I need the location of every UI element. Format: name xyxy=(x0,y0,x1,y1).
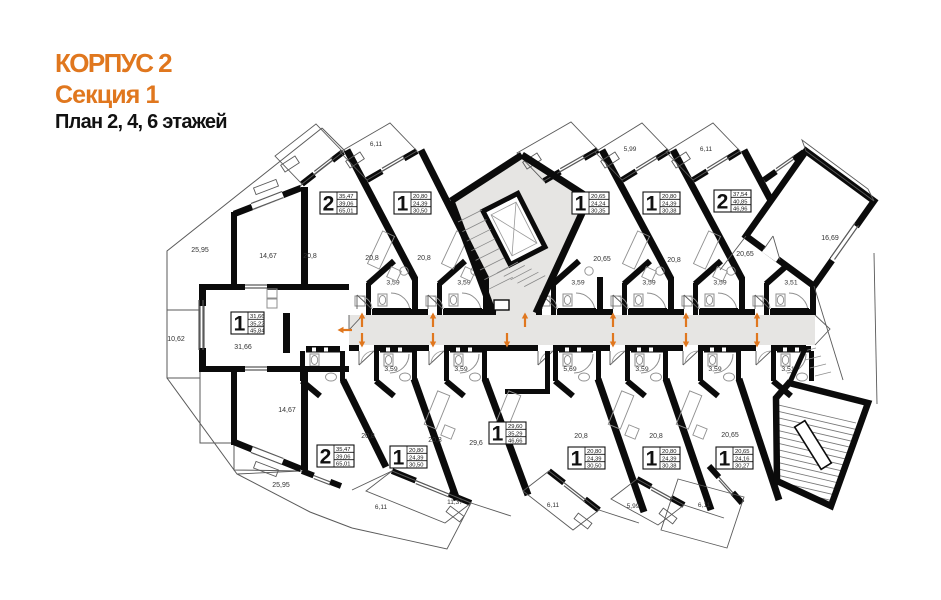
svg-text:20,8: 20,8 xyxy=(417,255,431,262)
svg-text:20,8: 20,8 xyxy=(667,257,681,264)
svg-text:30,38: 30,38 xyxy=(662,209,677,215)
svg-text:20,8: 20,8 xyxy=(574,433,588,440)
svg-text:25,95: 25,95 xyxy=(191,247,209,254)
svg-text:6,11: 6,11 xyxy=(698,502,711,509)
svg-text:2: 2 xyxy=(320,446,332,469)
svg-text:5,99: 5,99 xyxy=(624,146,637,153)
svg-text:30,50: 30,50 xyxy=(413,209,428,215)
svg-text:6,11: 6,11 xyxy=(375,504,388,511)
svg-text:20,8: 20,8 xyxy=(361,433,375,440)
svg-text:14,67: 14,67 xyxy=(259,253,277,260)
svg-text:5,99: 5,99 xyxy=(627,503,640,510)
svg-text:20,8: 20,8 xyxy=(649,433,663,440)
svg-text:10,62: 10,62 xyxy=(167,336,185,343)
svg-text:20,65: 20,65 xyxy=(721,432,739,439)
svg-text:31,66: 31,66 xyxy=(234,344,252,351)
svg-text:5,69: 5,69 xyxy=(563,366,576,373)
svg-text:65,01: 65,01 xyxy=(336,462,351,468)
svg-text:30,50: 30,50 xyxy=(409,463,424,469)
svg-text:20,65: 20,65 xyxy=(736,251,754,258)
svg-text:46,66: 46,66 xyxy=(508,439,523,445)
svg-text:3,51: 3,51 xyxy=(784,280,797,287)
svg-text:20,65: 20,65 xyxy=(593,256,611,263)
svg-text:1: 1 xyxy=(571,448,583,471)
svg-text:1: 1 xyxy=(397,193,409,216)
svg-text:2: 2 xyxy=(717,191,729,214)
svg-text:14,67: 14,67 xyxy=(278,407,296,414)
svg-text:1: 1 xyxy=(393,447,405,470)
svg-text:25,95: 25,95 xyxy=(272,482,290,489)
svg-text:1: 1 xyxy=(575,193,587,216)
svg-text:20,8: 20,8 xyxy=(428,437,442,444)
svg-text:1: 1 xyxy=(646,448,658,471)
svg-text:3,59: 3,59 xyxy=(571,280,584,287)
svg-text:2: 2 xyxy=(323,193,335,216)
svg-text:16,69: 16,69 xyxy=(821,235,839,242)
svg-text:30,35: 30,35 xyxy=(591,209,606,215)
svg-text:1: 1 xyxy=(719,448,731,471)
svg-text:30,38: 30,38 xyxy=(662,464,677,470)
svg-text:45,84: 45,84 xyxy=(250,329,265,335)
svg-text:29,6: 29,6 xyxy=(469,440,483,447)
svg-text:6,11: 6,11 xyxy=(547,502,560,509)
svg-text:46,96: 46,96 xyxy=(733,207,748,213)
svg-text:65,01: 65,01 xyxy=(339,209,354,215)
svg-text:20,8: 20,8 xyxy=(303,253,317,260)
svg-text:1: 1 xyxy=(492,423,504,446)
svg-text:20,8: 20,8 xyxy=(365,255,379,262)
svg-text:1: 1 xyxy=(234,313,246,336)
svg-text:6,11: 6,11 xyxy=(370,141,383,148)
svg-text:30,27: 30,27 xyxy=(735,464,750,470)
svg-text:3,59: 3,59 xyxy=(386,280,399,287)
svg-text:6,11: 6,11 xyxy=(700,146,713,153)
svg-text:11,37: 11,37 xyxy=(447,499,463,506)
svg-text:30,50: 30,50 xyxy=(587,464,602,470)
svg-text:1: 1 xyxy=(646,193,658,216)
